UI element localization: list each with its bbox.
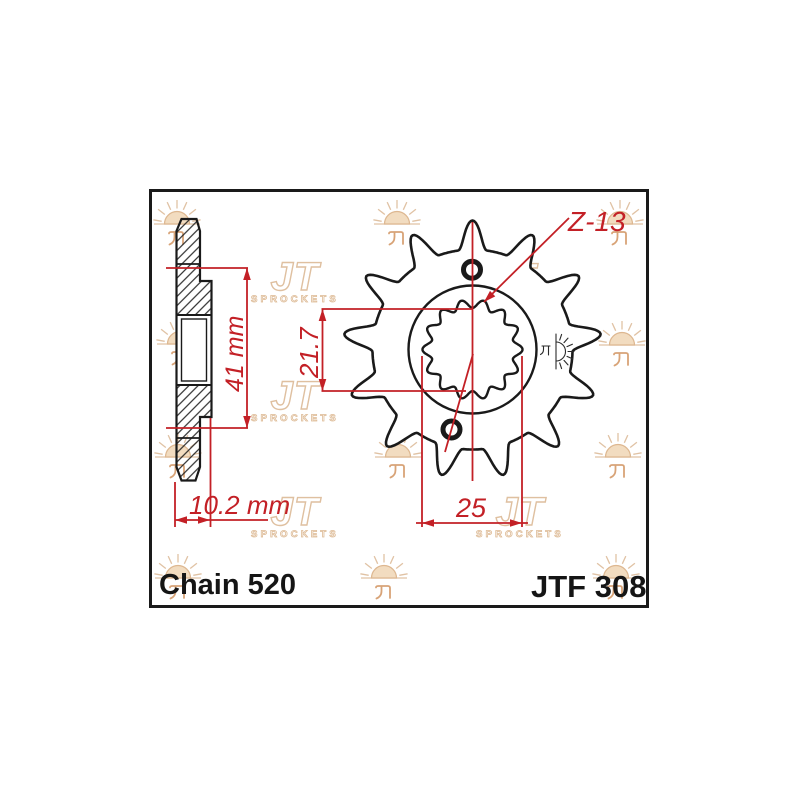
drawing-canvas: JT SPROCKETS 41 mm 21.7 10.2 mm xyxy=(0,0,800,800)
dim-overall-width-label: 41 mm xyxy=(221,316,249,392)
dim-hub-width-label: 10.2 mm xyxy=(189,490,290,520)
bore-section-inner xyxy=(182,319,207,381)
sprocket-side-section-view xyxy=(177,219,212,481)
dim-bore-diameter-label: 21.7 xyxy=(294,326,324,379)
teeth-count-label: Z-13 xyxy=(567,206,626,237)
part-number-label: JTF 308 xyxy=(531,569,646,604)
chain-size-label: Chain 520 xyxy=(159,569,296,601)
dim-spline-diameter-label: 25 xyxy=(455,493,487,523)
upper-hatched-section xyxy=(177,219,212,315)
lower-hatched-section xyxy=(177,385,212,481)
sprocket-technical-drawing-page: JT SPROCKETS 41 mm 21.7 10.2 mm xyxy=(0,0,800,800)
